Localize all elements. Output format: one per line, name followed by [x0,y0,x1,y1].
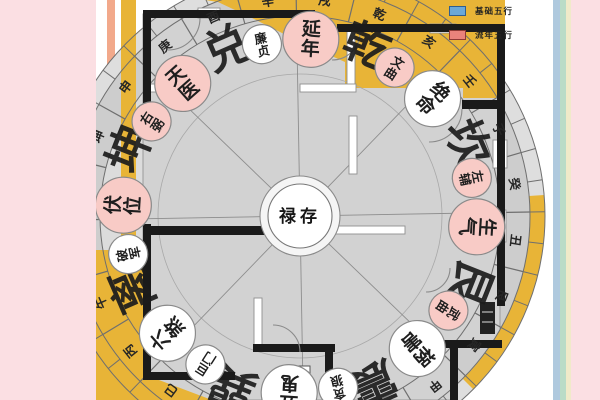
wall-segment [151,226,268,235]
base-position-circle-label: 生气 [455,215,499,238]
left-margin-overlay [0,0,96,400]
wall-segment [450,346,458,400]
base-position-circle-label: 伏位 [101,194,145,216]
legend: 基础五行 流年五行 [449,5,513,53]
legend-label-year: 流年五行 [475,29,513,41]
legend-row-base: 基础五行 [449,5,513,16]
luopan-compass-floorplan: 离丙午丁坤未坤申兑庚酉辛乾戌乾亥坎壬子癸艮丑艮寅震甲卯乙巽辰巽巳破军伏位右弼天医… [0,0,600,400]
interior-wall [300,84,356,92]
center-star-label: 禄存 [279,206,321,227]
right-blue-overlay [553,0,560,400]
base-position-circle-label: 延年 [299,18,323,61]
mountain-label: 戌 [317,0,332,9]
interior-wall [349,116,357,174]
mountain-label: 癸 [506,176,523,192]
right-margin-overlay [571,0,600,400]
mountain-label: 丑 [507,233,523,248]
legend-label-base: 基础五行 [475,5,513,17]
base-position-circle-label: 五鬼 [278,371,300,400]
fengshui-compass-page: { "legend": { "items": [ {"label": "基础五行… [0,0,600,400]
right-green-overlay [560,0,566,400]
interior-wall [254,298,262,348]
legend-swatch-base [449,6,466,16]
wall-segment [253,344,335,352]
legend-row-year: 流年五行 [449,29,513,40]
legend-swatch-year [449,30,466,40]
right-cream-overlay [566,0,571,400]
